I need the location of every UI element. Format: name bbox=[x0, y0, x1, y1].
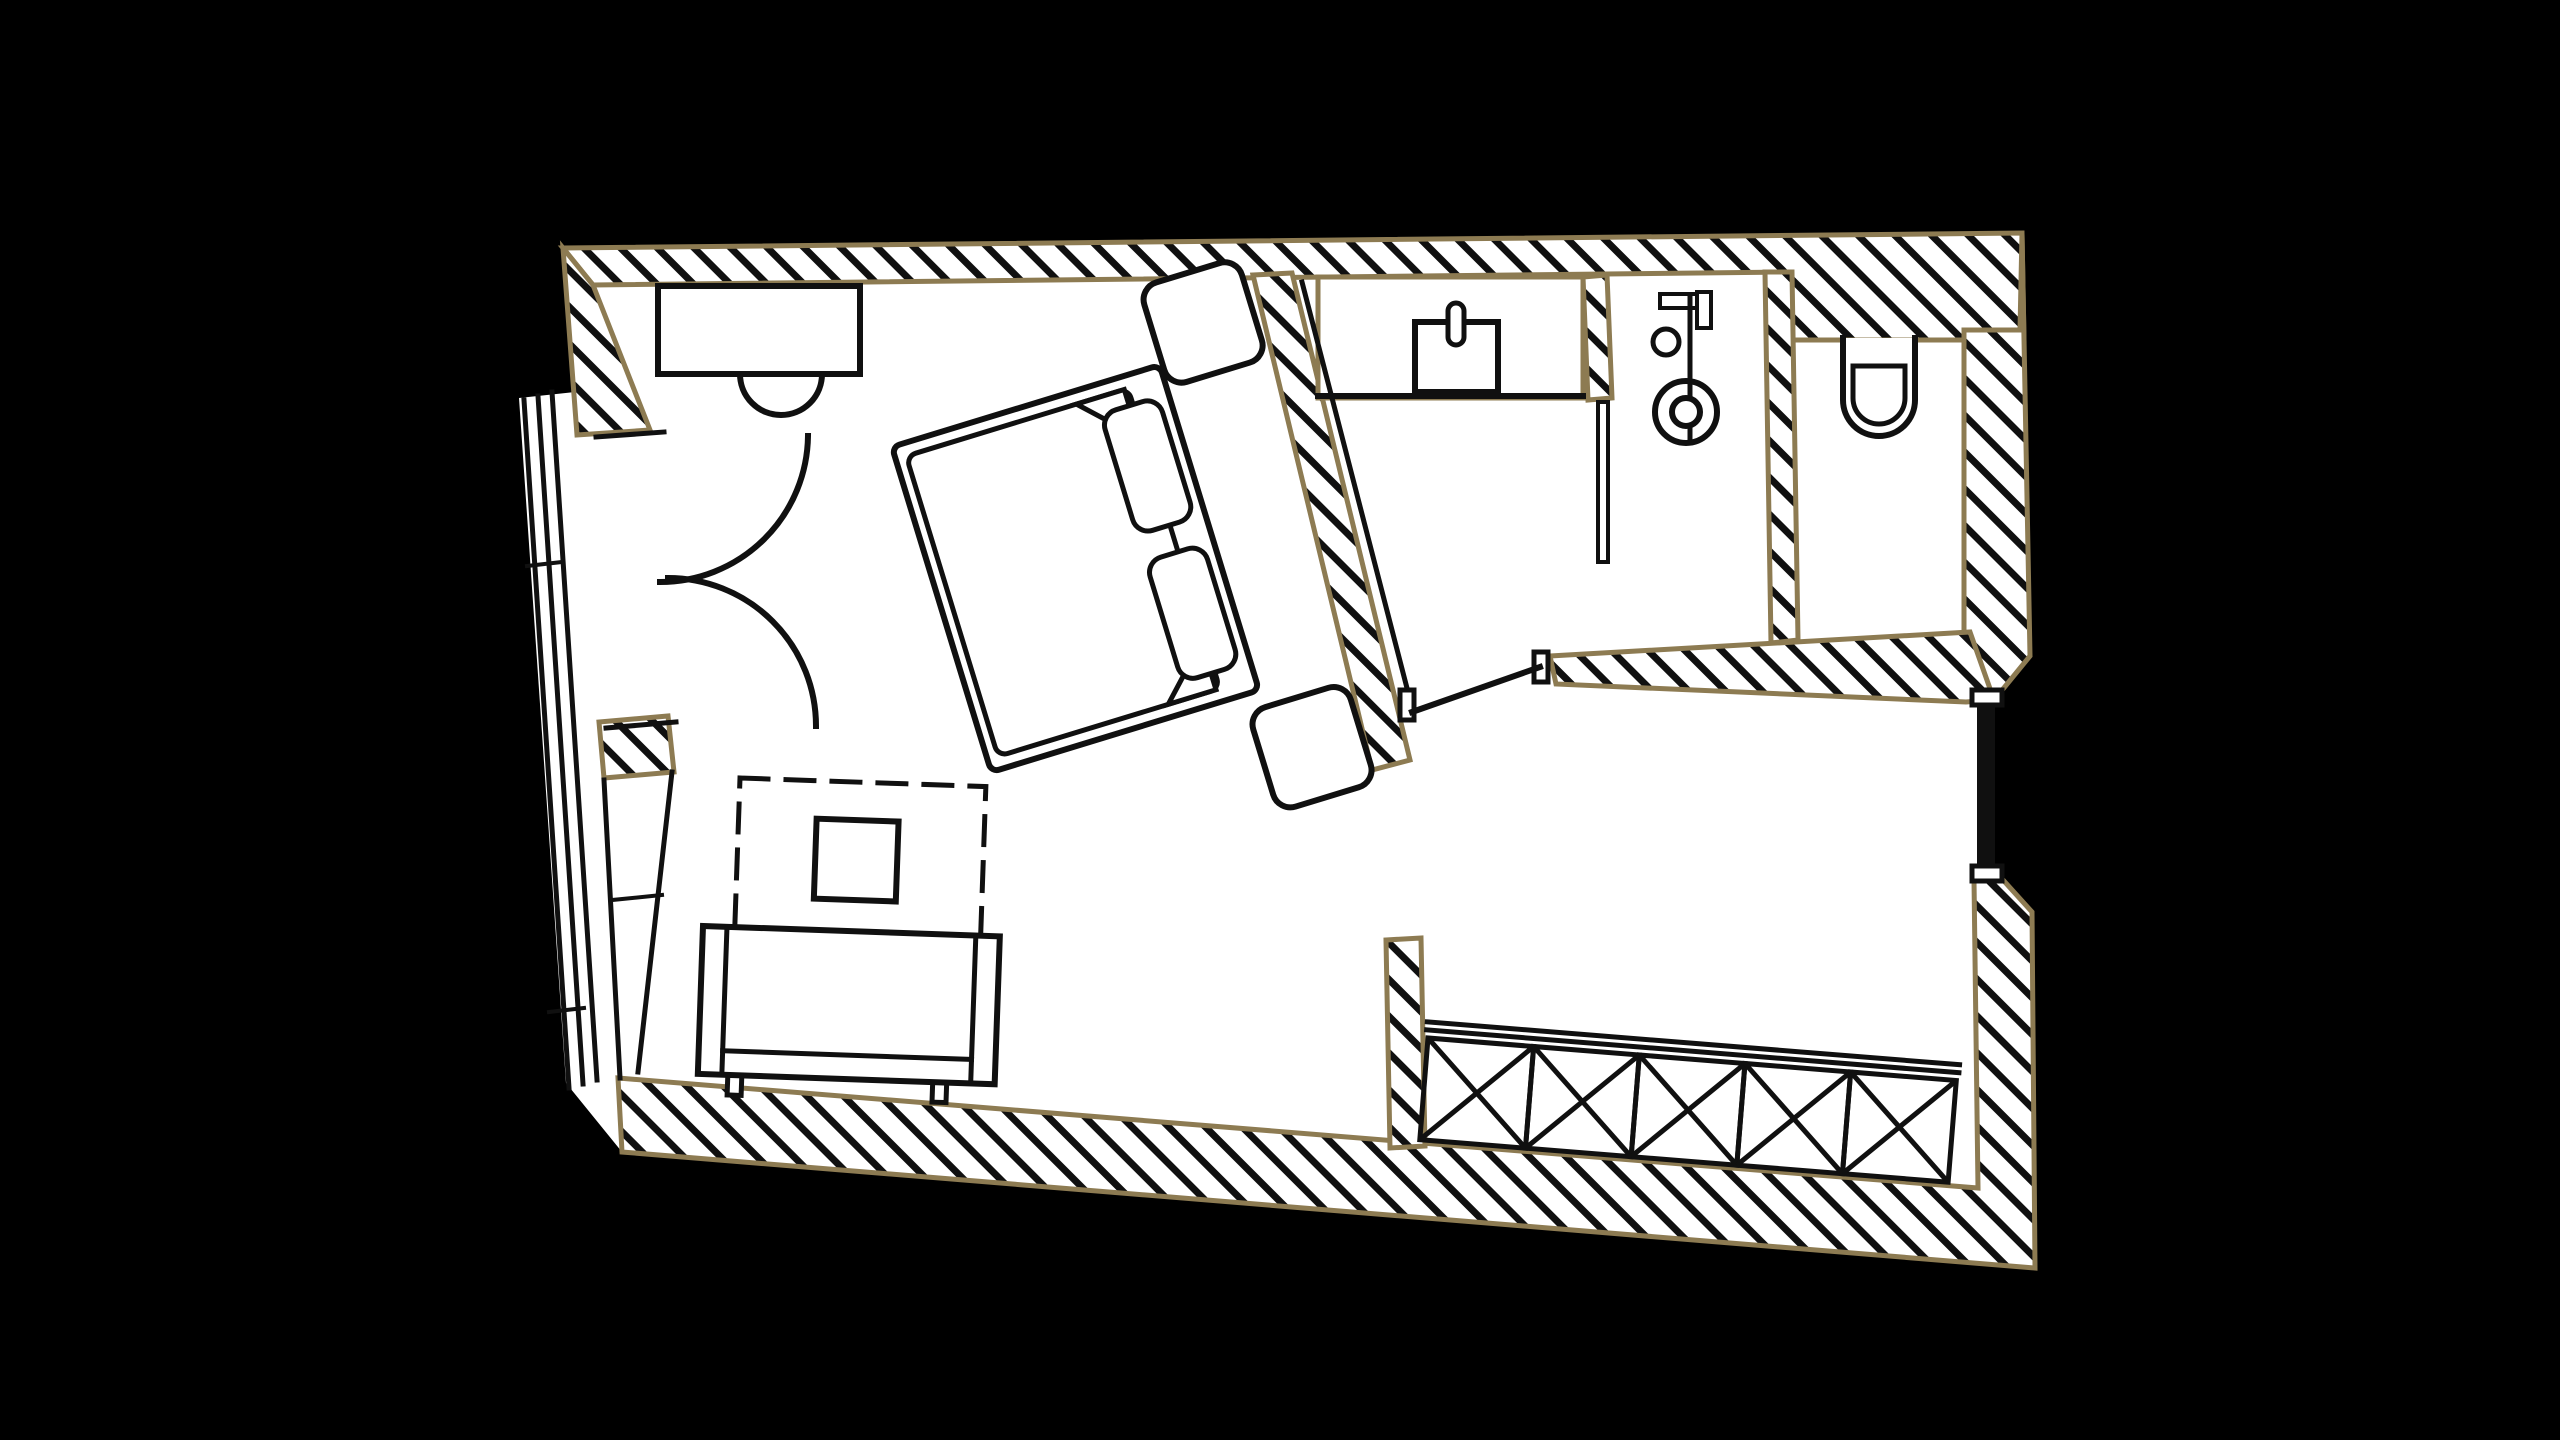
toilet bbox=[1843, 338, 1915, 436]
wall-vanity-stub bbox=[1583, 275, 1612, 400]
desk bbox=[658, 286, 860, 374]
right-window-bar bbox=[1977, 705, 1995, 867]
floor-plan-stage bbox=[0, 0, 2560, 1440]
floor-plan-drawing bbox=[0, 0, 2560, 1440]
bench bbox=[697, 926, 1000, 1104]
shower-head bbox=[1697, 292, 1711, 328]
side-table bbox=[814, 819, 899, 902]
right-window-cap-bottom bbox=[1972, 866, 2002, 881]
wall-wardrobe-stub bbox=[1386, 938, 1425, 1148]
shower-drain-center bbox=[1672, 398, 1700, 426]
wall-shower-wc-divider bbox=[1765, 272, 1798, 643]
faucet bbox=[1448, 303, 1464, 345]
toilet-seat bbox=[1853, 366, 1905, 424]
right-window-cap-top bbox=[1972, 690, 2002, 705]
door-jamb-left bbox=[1400, 690, 1414, 720]
shower-glass-panel bbox=[1598, 402, 1608, 562]
shower-knob bbox=[1653, 329, 1679, 355]
